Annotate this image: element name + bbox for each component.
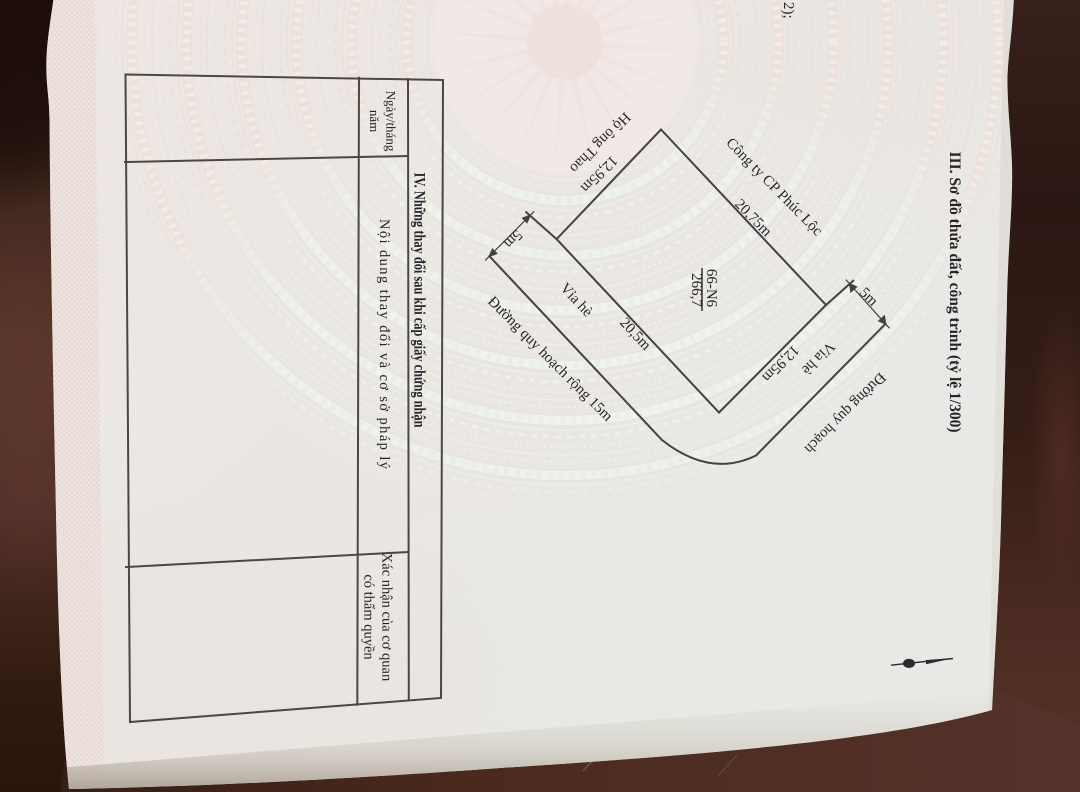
svg-text:năm: năm xyxy=(367,110,382,132)
svg-text:III. Sơ đồ thửa đất, công trìn: III. Sơ đồ thửa đất, công trình (tỷ lệ 1… xyxy=(946,152,963,433)
svg-text:IV. Những thay đổi sau khi cấp: IV. Những thay đổi sau khi cấp giấy chứn… xyxy=(411,173,428,428)
svg-text:có thẩm quyền: có thẩm quyền xyxy=(361,574,377,660)
svg-text:Nội dung thay đổi và cơ sở phá: Nội dung thay đổi và cơ sở pháp lý xyxy=(376,219,392,470)
svg-text:2);: 2); xyxy=(780,2,796,19)
svg-text:Ngày/tháng: Ngày/tháng xyxy=(384,91,399,152)
svg-text:Xác nhận của cơ quan: Xác nhận của cơ quan xyxy=(379,553,395,682)
svg-text:66-N6: 66-N6 xyxy=(703,269,719,308)
